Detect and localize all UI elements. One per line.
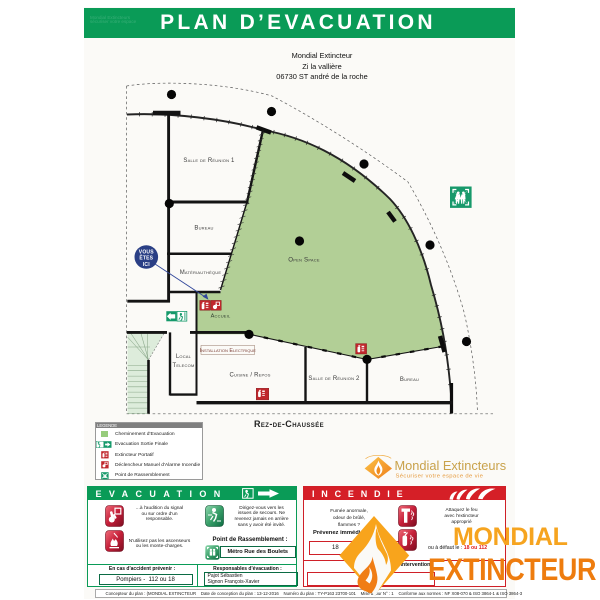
- svg-text:MONDIAL: MONDIAL: [453, 523, 568, 551]
- svg-text:Matériauthèque: Matériauthèque: [180, 270, 222, 276]
- svg-text:Salle de Réunion 1: Salle de Réunion 1: [183, 158, 235, 164]
- svg-text:ÊTES: ÊTES: [139, 254, 153, 262]
- svg-text:Telecom: Telecom: [173, 363, 195, 369]
- svg-text:VOUS: VOUS: [139, 250, 154, 256]
- svg-text:Open Space: Open Space: [288, 257, 320, 264]
- svg-text:Installation Electrique: Installation Electrique: [200, 348, 257, 354]
- svg-text:Mondial Extincteurs: Mondial Extincteurs: [395, 458, 507, 473]
- svg-text:Bureau: Bureau: [194, 226, 213, 232]
- svg-text:Local: Local: [176, 354, 192, 360]
- svg-text:EXTINCTEUR: EXTINCTEUR: [428, 551, 597, 587]
- svg-text:Bureau: Bureau: [400, 377, 419, 383]
- svg-text:Salle de Réunion 2: Salle de Réunion 2: [308, 376, 360, 382]
- svg-text:ICI: ICI: [143, 262, 150, 268]
- svg-text:Accueil: Accueil: [211, 314, 231, 320]
- svg-text:Sécuriser votre espace de vie: Sécuriser votre espace de vie: [396, 473, 484, 479]
- svg-text:Cuisine / Repos: Cuisine / Repos: [229, 373, 270, 379]
